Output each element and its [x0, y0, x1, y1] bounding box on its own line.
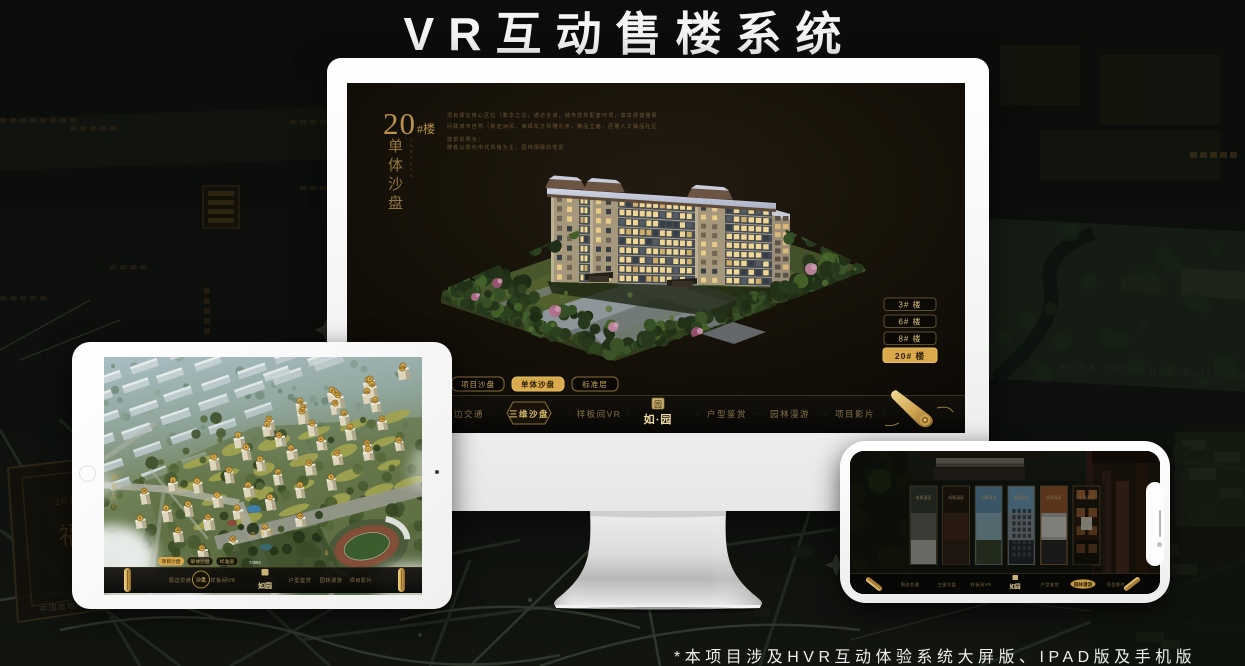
svg-text:户型鉴赏: 户型鉴赏 [1041, 581, 1060, 588]
svg-text:23: 23 [336, 393, 340, 397]
svg-text:西: 西 [250, 532, 256, 539]
svg-text:20: 20 [383, 106, 416, 141]
svg-text:3: 3 [369, 377, 371, 381]
svg-text:H: H [410, 144, 413, 148]
svg-text:27: 27 [235, 507, 239, 511]
svg-text:建筑说明为：: 建筑说明为： [447, 136, 484, 143]
svg-text:盘: 盘 [388, 194, 403, 212]
svg-text:25: 25 [380, 417, 384, 421]
svg-text:项目沙盘: 项目沙盘 [461, 379, 495, 389]
svg-text:间联城市自然（新亚洲风，演绎东方风雅礼序，精品立面，匠著人文: 间联城市自然（新亚洲风，演绎东方风雅礼序，精品立面，匠著人文臻品社区 [447, 123, 658, 130]
svg-text:20: 20 [365, 390, 369, 394]
svg-text:沙盘: 沙盘 [196, 577, 206, 584]
svg-text:20# 楼: 20# 楼 [895, 350, 925, 361]
svg-text:0: 0 [410, 162, 412, 166]
svg-text:8: 8 [266, 423, 268, 427]
svg-text:项目影片: 项目影片 [350, 576, 373, 584]
svg-text:样板间VR: 样板间VR [971, 581, 992, 588]
svg-text:6: 6 [299, 484, 301, 488]
svg-text:9: 9 [330, 475, 332, 479]
svg-text:13: 13 [289, 447, 293, 451]
svg-text:H: H [410, 174, 413, 178]
svg-text:项目择址核心区位（繁华之芯，通达全城，城市醇熟配套环伺，尊享: 项目择址核心区位（繁华之芯，通达全城，城市醇熟配套环伺，尊享便捷雅致 [447, 112, 658, 119]
svg-text:三维沙盘: 三维沙盘 [509, 409, 549, 419]
svg-text:26: 26 [365, 441, 369, 445]
svg-text:28: 28 [176, 528, 180, 532]
svg-text:6# 楼: 6# 楼 [898, 317, 921, 327]
svg-text:1: 1 [196, 479, 198, 483]
svg-text:20: 20 [267, 417, 271, 421]
svg-text:周边交通: 周边交通 [169, 576, 192, 584]
svg-text:8: 8 [139, 516, 141, 520]
svg-text:单体沙盘: 单体沙盘 [190, 558, 209, 565]
svg-text:21: 21 [263, 526, 267, 530]
svg-text:园林漫游: 园林漫游 [1074, 581, 1093, 588]
svg-text:22: 22 [373, 399, 377, 403]
svg-text:16: 16 [370, 383, 374, 387]
svg-text:15: 15 [333, 401, 337, 405]
svg-text:7: 7 [216, 493, 218, 497]
svg-text:#楼: #楼 [417, 121, 435, 136]
svg-text:9: 9 [165, 507, 167, 511]
svg-text:6: 6 [245, 445, 247, 449]
svg-text:3# 楼: 3# 楼 [898, 300, 921, 310]
svg-text:2: 2 [410, 156, 412, 160]
svg-text:16: 16 [298, 400, 302, 404]
svg-text:如·园: 如·园 [644, 412, 673, 426]
svg-text:10: 10 [277, 433, 281, 437]
svg-text:26: 26 [142, 489, 146, 493]
svg-text:19: 19 [307, 461, 311, 465]
svg-text:13: 13 [298, 514, 302, 518]
svg-text:户型鉴赏: 户型鉴赏 [707, 409, 747, 419]
svg-text:样板间VR: 样板间VR [210, 576, 235, 584]
svg-text:体: 体 [388, 157, 403, 174]
svg-text:户型鉴赏: 户型鉴赏 [289, 576, 312, 584]
svg-text:18: 18 [231, 537, 235, 541]
svg-text:14: 14 [397, 438, 401, 442]
svg-text:园: 园 [654, 400, 662, 409]
svg-text:16: 16 [276, 471, 280, 475]
svg-text:沙: 沙 [388, 177, 403, 193]
svg-text:单: 单 [388, 138, 403, 155]
svg-text:三维沙盘: 三维沙盘 [938, 581, 957, 588]
svg-text:青: 青 [324, 550, 329, 557]
svg-text:样板间VR: 样板间VR [577, 409, 622, 419]
svg-text:道: 道 [268, 527, 274, 535]
svg-text:2: 2 [213, 455, 215, 459]
svg-text:项目影片: 项目影片 [1107, 581, 1126, 588]
svg-text:17: 17 [319, 437, 323, 441]
svg-text:14: 14 [310, 421, 314, 425]
svg-text:如园: 如园 [1009, 583, 1021, 591]
svg-text:项目沙盘: 项目沙盘 [161, 558, 180, 565]
svg-text:3: 3 [237, 434, 239, 438]
svg-text:23: 23 [335, 451, 339, 455]
svg-text:9: 9 [259, 457, 261, 461]
svg-text:73894: 73894 [249, 560, 261, 565]
svg-text:5: 5 [228, 468, 230, 472]
svg-text:单体沙盘: 单体沙盘 [521, 379, 555, 389]
svg-text:13: 13 [200, 546, 204, 550]
svg-text:如园: 如园 [258, 581, 272, 590]
svg-text:园林漫游: 园林漫游 [770, 409, 810, 419]
svg-text:项目影片: 项目影片 [835, 409, 875, 419]
svg-text:26: 26 [401, 365, 405, 369]
svg-text:标准层: 标准层 [220, 558, 235, 565]
svg-text:周边交通: 周边交通 [901, 581, 920, 588]
svg-text:13: 13 [301, 405, 305, 409]
svg-text:24: 24 [206, 515, 210, 519]
svg-text:18: 18 [342, 412, 346, 416]
svg-text:楼栋以现代中式风格为主，园林相融的宅邸: 楼栋以现代中式风格为主，园林相融的宅邸 [447, 144, 565, 151]
svg-text:青: 青 [259, 529, 265, 537]
svg-text:7: 7 [367, 448, 369, 452]
svg-text:4: 4 [187, 502, 189, 506]
svg-text:21: 21 [348, 426, 352, 430]
svg-text:2: 2 [269, 495, 271, 499]
svg-text:8# 楼: 8# 楼 [898, 334, 921, 344]
svg-text:园林漫游: 园林漫游 [320, 576, 343, 584]
svg-text:8: 8 [172, 479, 174, 483]
svg-text:11: 11 [246, 484, 250, 488]
svg-text:标准层: 标准层 [582, 379, 608, 389]
